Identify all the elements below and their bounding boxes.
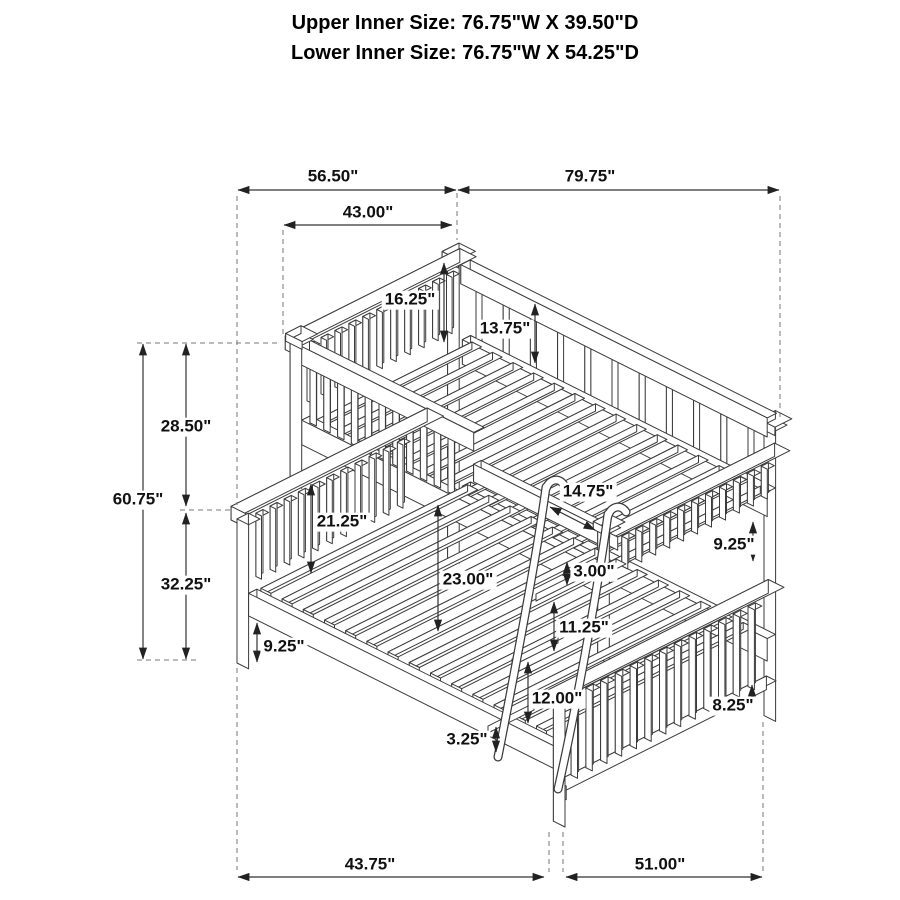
dim-label-bottom-right-span: 51.00" [632,856,689,875]
dim-label-ladder-bottom-gap: 3.25" [443,731,490,750]
dim-label-under-bunk-clearance: 23.00" [440,571,497,590]
dim-label-upper-height: 28.50" [158,418,215,437]
dim-label-lower-height: 32.25" [158,576,215,595]
bunk-bed-dimension-diagram: Upper Inner Size: 76.75"W X 39.50"D Lowe… [0,0,900,900]
lower-inner-size-title: Lower Inner Size: 76.75"W X 54.25"D [0,38,900,68]
dim-label-footboard-guard-height: 9.25" [710,536,757,555]
isometric-bed-drawing [0,0,900,900]
dim-label-post-offset: 14.75" [560,483,617,502]
dim-label-lower-headboard-height: 21.25" [314,513,371,532]
dim-label-rail-floor-gap: 9.25" [260,638,307,657]
dim-label-footboard-rail-gap: 8.25" [709,697,756,716]
dim-label-upper-headboard-depth: 43.00" [340,204,397,223]
dim-label-rear-rail-height: 13.75" [477,320,534,339]
upper-inner-size-title: Upper Inner Size: 76.75"W X 39.50"D [0,8,900,38]
dim-label-bottom-left-span: 43.75" [342,856,399,875]
dim-label-ladder-hook-gap: 3.00" [570,563,617,582]
dim-label-top-length: 79.75" [562,168,619,187]
dim-label-guardrail-height: 16.25" [382,291,439,310]
dim-label-step-gap-upper: 11.25" [556,619,612,638]
dim-label-step-gap-lower: 12.00" [529,690,586,709]
dim-label-top-depth: 56.50" [305,168,362,187]
dim-label-total-height: 60.75" [110,491,167,510]
